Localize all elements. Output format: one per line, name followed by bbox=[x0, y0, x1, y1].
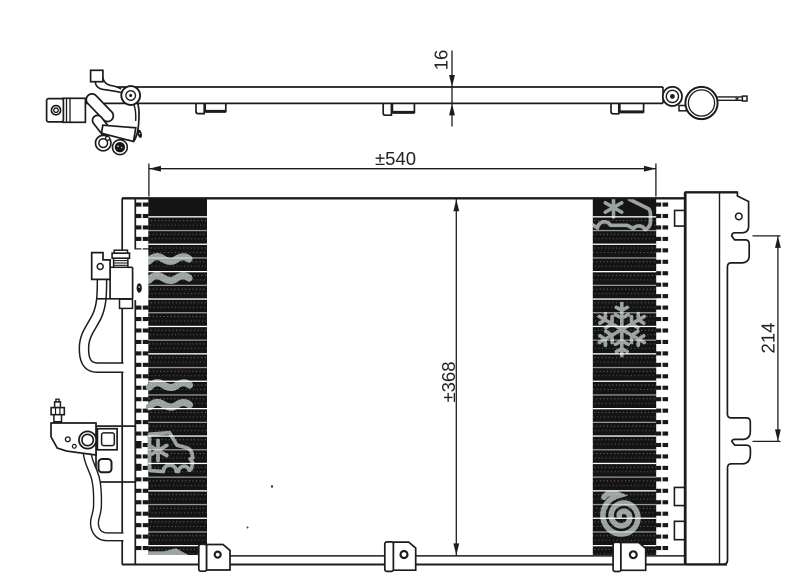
svg-text:±368: ±368 bbox=[438, 361, 459, 402]
svg-text:±540: ±540 bbox=[375, 148, 416, 169]
svg-text:214: 214 bbox=[757, 323, 778, 354]
svg-text:16: 16 bbox=[430, 50, 451, 71]
